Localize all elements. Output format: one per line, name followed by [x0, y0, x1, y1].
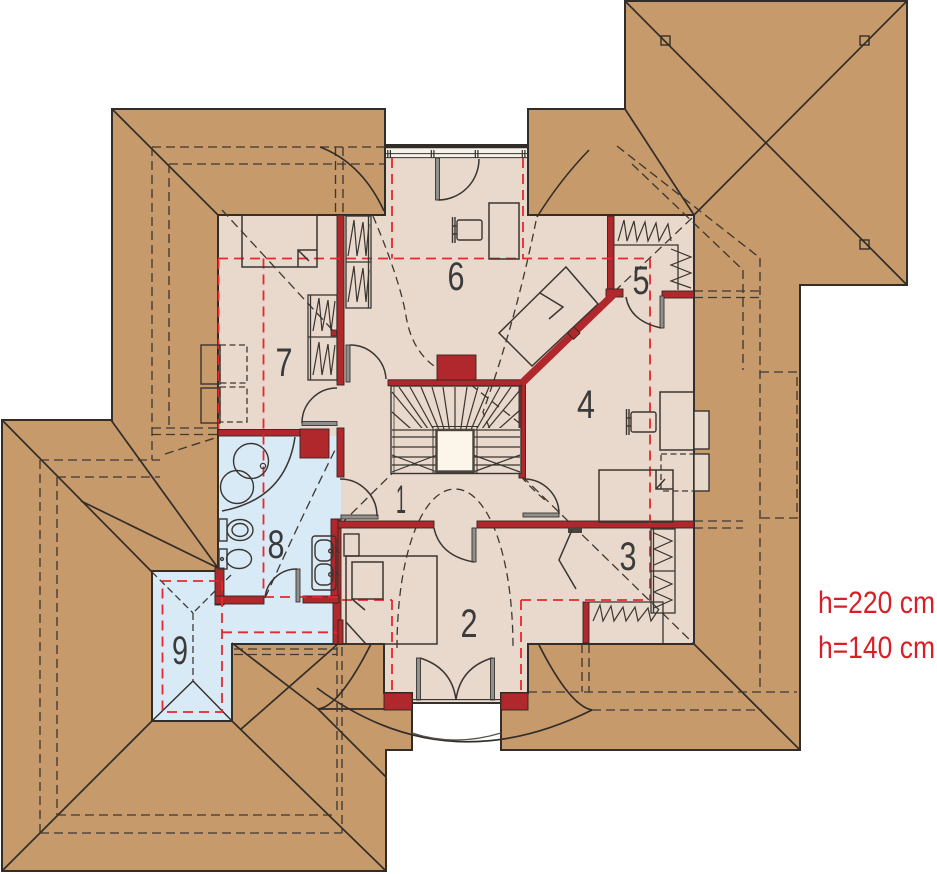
svg-text:4: 4 [577, 383, 595, 427]
svg-text:1: 1 [396, 478, 406, 522]
svg-text:2: 2 [461, 602, 478, 646]
svg-text:5: 5 [633, 259, 650, 303]
svg-text:9: 9 [172, 629, 188, 673]
svg-text:6: 6 [448, 255, 465, 299]
svg-text:h=220 cm: h=220 cm [818, 585, 935, 620]
svg-text:h=140 cm: h=140 cm [818, 630, 935, 665]
svg-text:3: 3 [620, 535, 637, 579]
svg-text:8: 8 [268, 523, 285, 567]
svg-text:7: 7 [276, 341, 293, 385]
